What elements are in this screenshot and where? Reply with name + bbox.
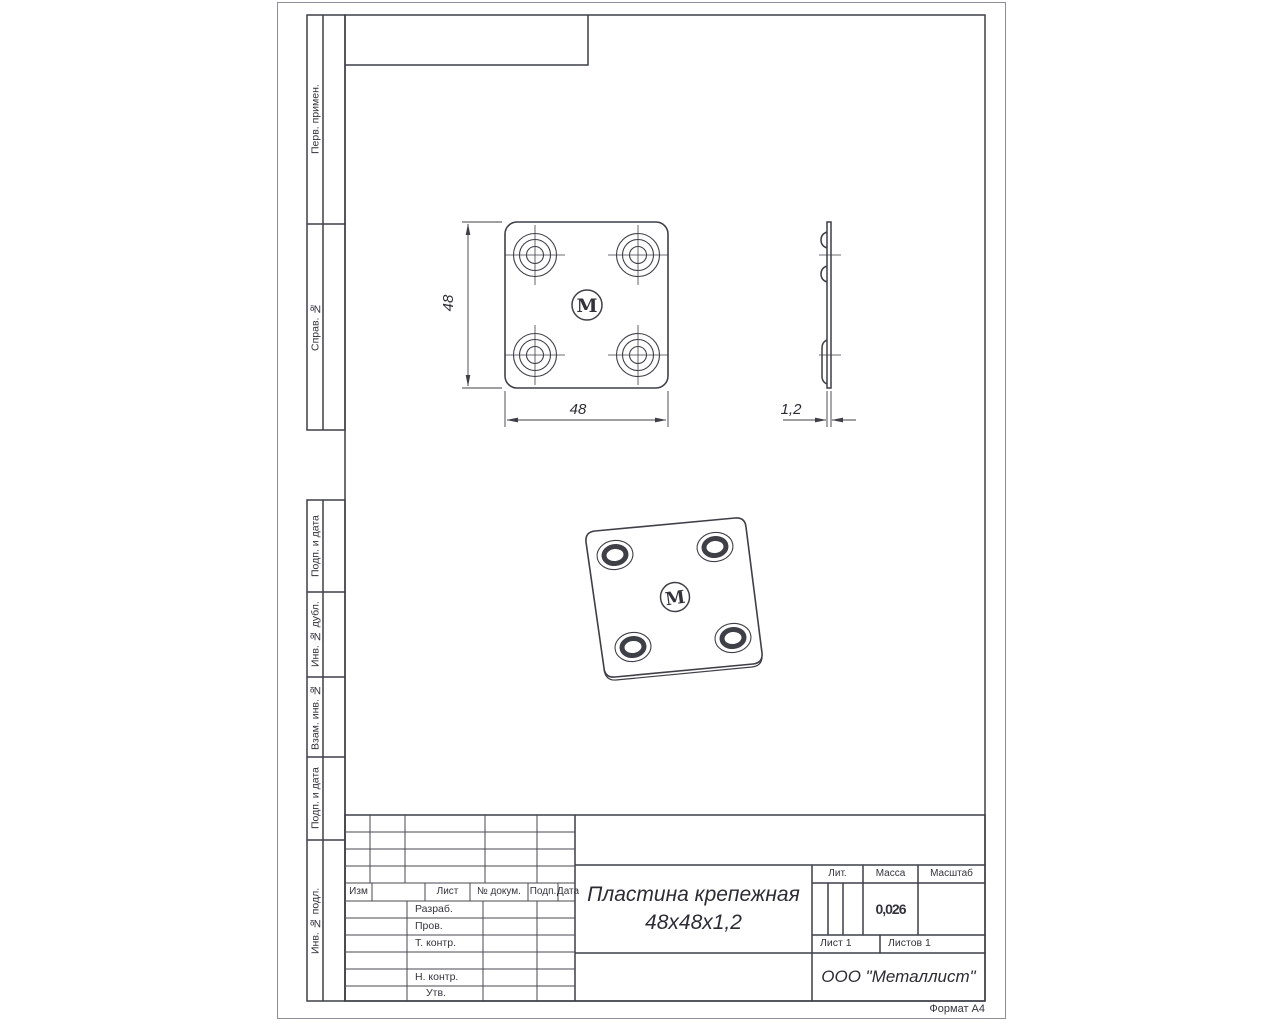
lit-label: Лит.	[812, 865, 863, 883]
role-approved: Утв.	[426, 986, 483, 1001]
iso-view: M	[586, 518, 762, 680]
iso-logo-letter: M	[664, 587, 687, 611]
mass-value: 0,026	[863, 883, 918, 935]
rev-header-doc: № докум.	[470, 883, 528, 901]
front-view: M	[462, 222, 668, 427]
mass-label: Масса	[863, 865, 918, 883]
sheets-total: Листов 1	[888, 935, 983, 953]
margin-label-podp-data-1: Подп. и дата	[307, 500, 324, 592]
rev-header-izm: Изм	[345, 883, 372, 901]
rev-header-list: Лист	[425, 883, 470, 901]
company-name: ООО "Металлист"	[812, 953, 985, 1001]
margin-label-sprav-no: Справ. №	[307, 224, 324, 430]
dim-height-48: 48	[440, 283, 456, 323]
margin-label-inv-podl: Инв. № подл.	[307, 840, 324, 1001]
drawing-sheet: M	[278, 3, 1005, 1018]
sheet-frame	[307, 15, 985, 1001]
margin-label-podp-data-2: Подп. и дата	[307, 757, 324, 840]
side-view	[783, 222, 856, 427]
role-developed: Разраб.	[415, 901, 483, 918]
scale-label: Масштаб	[918, 865, 985, 883]
role-checked: Пров.	[415, 918, 483, 935]
front-dimension-lines	[462, 222, 668, 427]
role-ncontrol: Н. контр.	[415, 969, 483, 986]
margin-label-inv-dubl: Инв. № дубл.	[307, 592, 324, 677]
part-title-line1: Пластина крепежная	[587, 883, 800, 907]
dim-width-48: 48	[558, 401, 598, 418]
sheet-number: Лист 1	[820, 935, 878, 953]
margin-label-vzam-inv: Взам. инв. №	[307, 677, 324, 757]
margin-label-perv-primen: Перв. примен.	[307, 15, 324, 224]
part-title-line2: 48х48х1,2	[645, 911, 742, 935]
role-tcontrol: Т. контр.	[415, 935, 483, 952]
page: M	[0, 0, 1280, 1024]
part-title-cell: Пластина крепежная 48х48х1,2	[575, 865, 812, 953]
format-label: Формат А4	[838, 1003, 985, 1015]
front-logo-letter: M	[576, 295, 597, 317]
dim-thickness-12: 1,2	[773, 401, 809, 418]
